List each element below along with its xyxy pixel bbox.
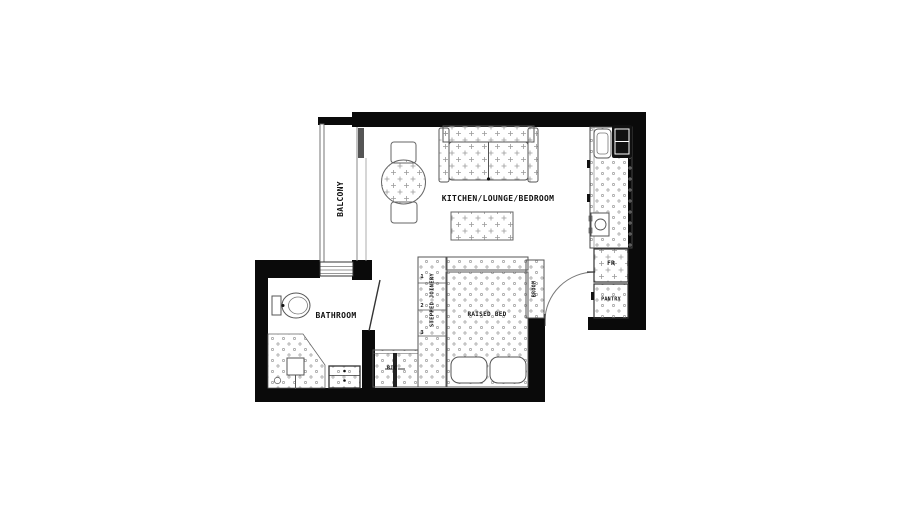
cabinet-handle: [587, 160, 590, 168]
floor-plan-drawing: [0, 0, 900, 506]
pillow: [451, 357, 487, 383]
pantry-handle: [591, 292, 594, 300]
chair: [391, 202, 417, 223]
dining-set: [382, 142, 426, 223]
sofa: [439, 126, 538, 182]
balcony-label: BALCONY: [337, 181, 345, 217]
step-number-3: 3: [420, 330, 423, 336]
sliding-door-panel: [358, 128, 364, 158]
prep-sink: [589, 213, 609, 236]
shower-drain: [274, 377, 280, 383]
raised-bed: [446, 257, 528, 387]
round-table: [382, 160, 426, 204]
cabinet-handle: [587, 194, 590, 202]
balcony-threshold: [320, 262, 353, 276]
step-number-2: 2: [420, 303, 423, 309]
coffee-table: [451, 212, 513, 240]
main-room-label: KITCHEN/LOUNGE/BEDROOM: [442, 195, 555, 203]
toilet: [272, 293, 310, 318]
kitchen-counter: [587, 125, 632, 248]
pillow: [490, 357, 526, 383]
broom-label: BROOM: [533, 281, 538, 298]
pantry-label: PANTRY: [601, 298, 621, 303]
entry-door: [545, 272, 595, 326]
kitchen-sink: [594, 129, 611, 158]
step-number-1: 1: [420, 274, 423, 280]
bic-label: BIC: [387, 367, 397, 372]
bathroom-label: BATHROOM: [316, 312, 357, 320]
fridge-label: FR: [607, 261, 615, 267]
bathroom-door-leaf: [369, 280, 380, 331]
floor-plan-canvas: BALCONY KITCHEN/LOUNGE/BEDROOM BATHROOM …: [0, 0, 900, 506]
stove: [612, 125, 632, 158]
raised-bed-label: RAISED BED: [467, 312, 506, 318]
vanity: [329, 366, 360, 388]
bed-headboard: [446, 257, 528, 270]
shower: [268, 334, 325, 389]
stepped-joinery-label: STEPPED JOINERY: [430, 273, 436, 327]
balcony-railing: [320, 124, 324, 262]
shower-mixer: [287, 358, 304, 375]
